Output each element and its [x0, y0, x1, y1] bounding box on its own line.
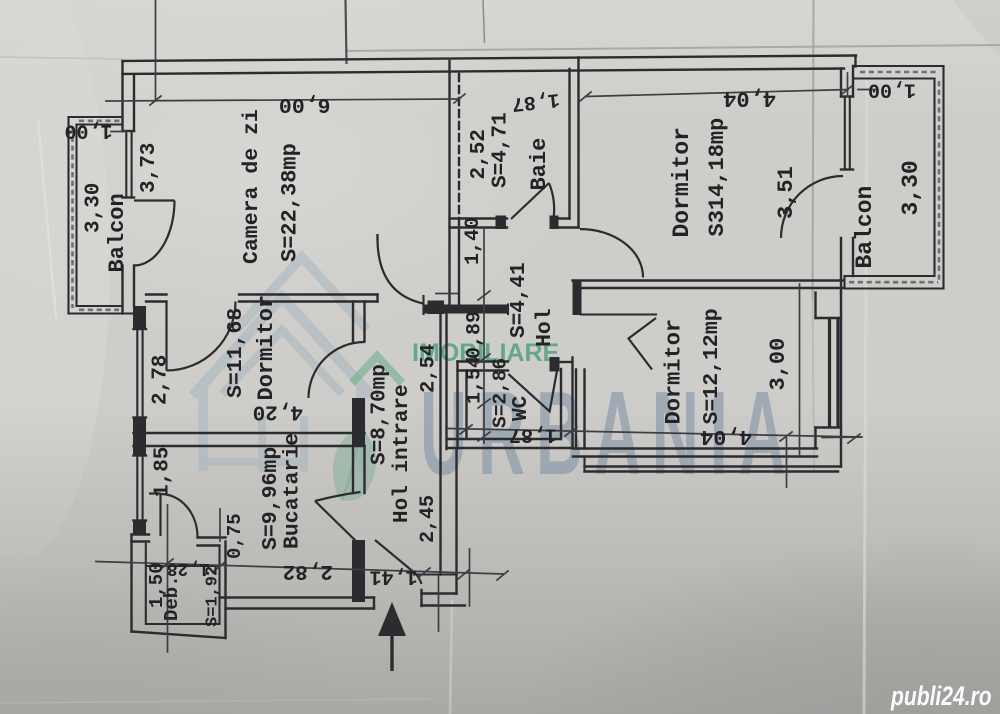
svg-text:3,30: 3,30: [83, 183, 106, 233]
svg-text:0,75: 0,75: [224, 513, 246, 559]
svg-text:4,04: 4,04: [700, 424, 752, 448]
svg-text:S=8,70mp: S=8,70mp: [369, 364, 392, 465]
svg-text:Dormitor: Dormitor: [669, 127, 695, 237]
svg-text:1,87: 1,87: [509, 423, 557, 446]
svg-text:S=1,92: S=1,92: [204, 566, 223, 627]
svg-text:1,40: 1,40: [462, 217, 485, 265]
svg-text:1,54: 1,54: [464, 356, 487, 404]
svg-text:Bucatarie: Bucatarie: [281, 433, 305, 549]
svg-text:S=9,96mp: S=9,96mp: [259, 447, 283, 550]
svg-text:1,00: 1,00: [64, 119, 112, 142]
svg-text:2,54: 2,54: [418, 344, 441, 393]
svg-text:Dormitor: Dormitor: [254, 295, 279, 401]
svg-text:4,20: 4,20: [253, 400, 303, 423]
svg-text:S=4,71: S=4,71: [490, 112, 513, 188]
svg-text:Balcon: Balcon: [852, 186, 878, 269]
svg-text:publi24.ro: publi24.ro: [890, 682, 991, 712]
svg-text:0,89: 0,89: [464, 311, 487, 359]
svg-text:WC: WC: [510, 395, 533, 421]
svg-text:Balcon: Balcon: [105, 193, 130, 272]
svg-text:Deb.: Deb.: [161, 575, 183, 621]
svg-text:Baie: Baie: [527, 138, 552, 191]
svg-text:6,00: 6,00: [279, 92, 331, 116]
svg-text:3,73: 3,73: [138, 143, 161, 193]
svg-text:1,85: 1,85: [152, 447, 175, 497]
svg-text:2,52: 2,52: [468, 129, 491, 179]
svg-text:Hol intrare: Hol intrare: [391, 384, 414, 523]
svg-text:3,00: 3,00: [766, 338, 791, 391]
svg-text:3,51: 3,51: [774, 166, 799, 219]
svg-text:Camera de zi: Camera de zi: [240, 109, 264, 264]
svg-text:S=12,12mp: S=12,12mp: [700, 308, 724, 424]
svg-text:S=22,38mp: S=22,38mp: [278, 143, 303, 262]
svg-text:2,82: 2,82: [283, 559, 333, 582]
svg-text:4,04: 4,04: [723, 86, 776, 111]
svg-text:2,45: 2,45: [417, 495, 440, 543]
svg-text:Dormitor: Dormitor: [662, 319, 687, 425]
svg-text:S=4,41: S=4,41: [508, 262, 531, 338]
svg-text:Hol: Hol: [533, 308, 557, 347]
svg-text:S314,18mp: S314,18mp: [705, 118, 730, 237]
svg-text:1,41: 1,41: [369, 565, 417, 588]
svg-text:2,78: 2,78: [150, 355, 173, 405]
svg-text:S=11,68: S=11,68: [224, 308, 248, 398]
svg-text:S=2,86: S=2,86: [490, 358, 512, 428]
svg-text:1,00: 1,00: [868, 78, 916, 101]
svg-text:3,30: 3,30: [898, 160, 924, 215]
